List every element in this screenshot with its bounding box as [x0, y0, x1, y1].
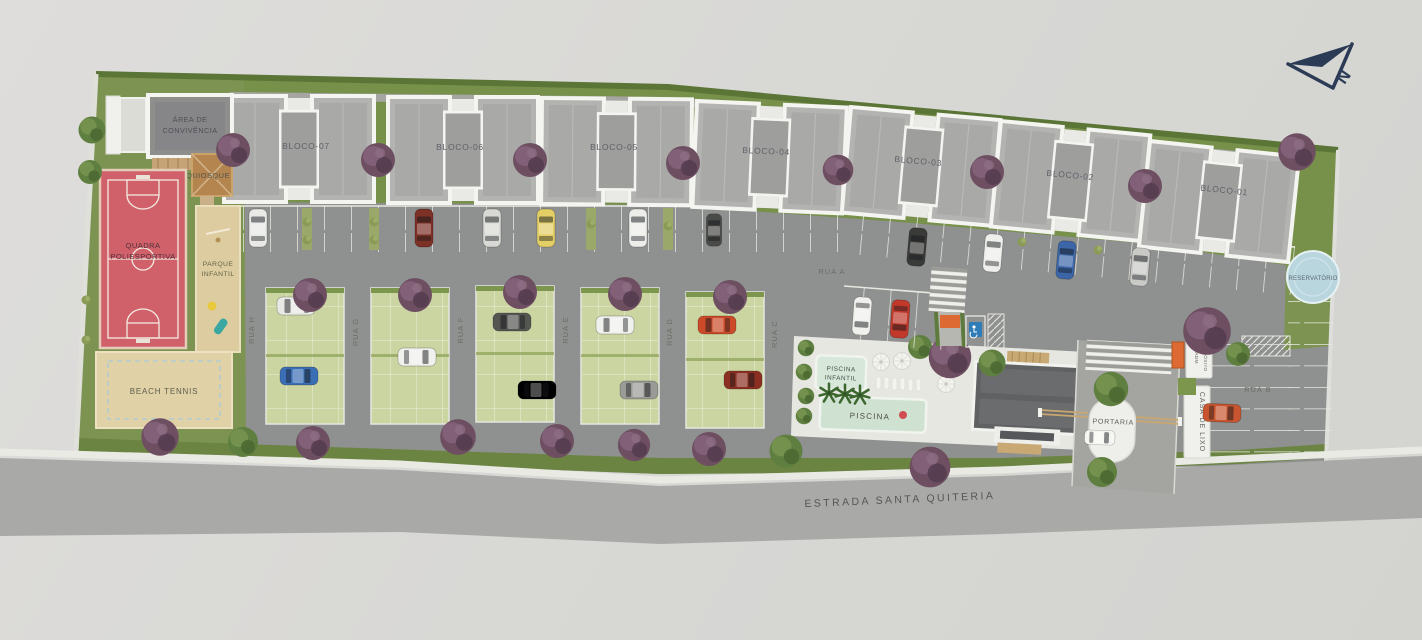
tree	[1087, 457, 1117, 487]
car	[620, 381, 658, 399]
tree	[79, 117, 106, 144]
bush	[798, 388, 815, 405]
piscina-infantil-label-line2: INFANTIL	[825, 374, 857, 382]
tree	[361, 143, 395, 177]
reservatorio-label: RESERVATÓRIO	[1288, 275, 1337, 282]
site-plan-svg: ESTRADA SANTA QUITERIA RUA A BLO	[0, 0, 1422, 640]
adm-label-line1: ADM	[1193, 352, 1199, 364]
rua-e-label: RUA E	[561, 316, 570, 343]
car	[249, 209, 267, 247]
rua-a-label: RUA A	[819, 267, 846, 276]
car	[724, 371, 762, 389]
bush	[798, 340, 815, 357]
planter-square	[1178, 378, 1196, 395]
car	[906, 227, 927, 266]
car	[537, 209, 555, 247]
bloco-04-building	[692, 101, 846, 213]
gatehouse-vehicle	[1084, 430, 1115, 445]
bush	[796, 364, 813, 381]
car	[1129, 247, 1150, 286]
tree	[296, 426, 330, 460]
tree	[1226, 342, 1250, 366]
hoop-top	[136, 175, 150, 179]
rua-b-label: RUA B	[1244, 385, 1271, 394]
tree	[440, 419, 476, 455]
quadra-label-line1: QUADRA	[126, 241, 161, 250]
hatched-zone	[988, 314, 1004, 348]
reservatorio: RESERVATÓRIO	[1287, 251, 1339, 303]
car	[852, 296, 873, 335]
site-plan-canvas: ESTRADA SANTA QUITERIA RUA A BLO	[0, 0, 1422, 640]
bloco-02-building	[991, 121, 1150, 241]
beach-tennis-label: BEACH TENNIS	[130, 387, 199, 396]
tree	[293, 278, 327, 312]
rua-c-label: RUA C	[770, 320, 779, 348]
rua-d-label: RUA D	[665, 318, 674, 346]
car	[982, 233, 1003, 272]
umbrella	[894, 353, 911, 370]
tree	[970, 155, 1004, 189]
car	[518, 381, 556, 399]
toy-yellow	[208, 302, 217, 311]
dumpster-container	[1172, 342, 1184, 368]
convivencia-label-line1: ÁREA DE	[173, 115, 208, 124]
car	[629, 209, 647, 247]
car	[596, 316, 634, 334]
tree	[141, 418, 178, 455]
tree	[618, 429, 650, 461]
tree	[228, 427, 258, 457]
umbrella	[873, 354, 890, 371]
car	[483, 209, 501, 247]
car	[698, 316, 736, 334]
tree	[540, 424, 574, 458]
tree	[666, 146, 700, 180]
tree	[823, 155, 854, 186]
tree	[770, 435, 803, 468]
quadra-label-line2: POLIESPORTIVA	[110, 252, 176, 261]
beach-tennis-court: BEACH TENNIS	[96, 352, 232, 428]
bush	[796, 408, 813, 425]
bloco-01-building	[1139, 141, 1299, 262]
tree	[216, 133, 250, 167]
quiosque-label: QUIOSQUE	[186, 171, 230, 180]
portaria-tree	[1094, 372, 1129, 407]
bloco-05-label: BLOCO-05	[590, 142, 638, 152]
piscina-label: PISCINA	[850, 411, 891, 421]
tree	[1128, 169, 1162, 203]
car	[706, 214, 721, 246]
rua-h-label: RUA H	[247, 316, 256, 344]
quadra-poliesportiva: QUADRA POLIESPORTIVA	[100, 170, 186, 348]
tree	[713, 280, 747, 314]
car	[493, 313, 531, 331]
car	[415, 209, 433, 247]
bloco-07-label: BLOCO-07	[282, 141, 330, 151]
crosswalk-pool	[929, 267, 968, 313]
shrub	[82, 296, 91, 305]
crosswalk-entrance	[1085, 340, 1172, 374]
tree	[608, 277, 642, 311]
parque-label-line1: PARQUE	[203, 261, 234, 268]
rua-f-label: RUA F	[456, 317, 465, 344]
tree	[503, 275, 537, 309]
tree	[910, 447, 951, 488]
parque-label-line2: INFANTIL	[201, 271, 234, 278]
car	[890, 299, 911, 338]
bloco-06-label: BLOCO-06	[436, 142, 484, 152]
pool-float	[899, 411, 907, 419]
portaria-label: PORTARIA	[1092, 418, 1134, 426]
car	[1203, 403, 1242, 422]
piscina-infantil-label-line1: PISCINA	[826, 365, 856, 373]
tree	[78, 160, 102, 184]
tree	[1278, 133, 1315, 170]
tree	[1183, 307, 1231, 355]
north-compass: N	[1288, 44, 1355, 88]
car	[280, 367, 318, 385]
hoop-bottom	[136, 339, 150, 343]
tree	[513, 143, 547, 177]
shrub	[82, 336, 91, 345]
casa-de-lixo-label: CASA DE LIXO	[1198, 392, 1205, 452]
bloco-04-label: BLOCO-04	[742, 145, 790, 157]
parque-infantil: PARQUE INFANTIL	[196, 206, 240, 352]
rua-g-label: RUA G	[351, 318, 360, 346]
tree	[979, 350, 1006, 377]
path-mat	[940, 315, 960, 328]
tree	[398, 278, 432, 312]
convivencia-label-line2: CONVIVÊNCIA	[162, 126, 217, 135]
tree	[692, 432, 726, 466]
piscina: PISCINA	[819, 396, 926, 433]
car	[398, 348, 436, 366]
car	[1055, 240, 1076, 279]
